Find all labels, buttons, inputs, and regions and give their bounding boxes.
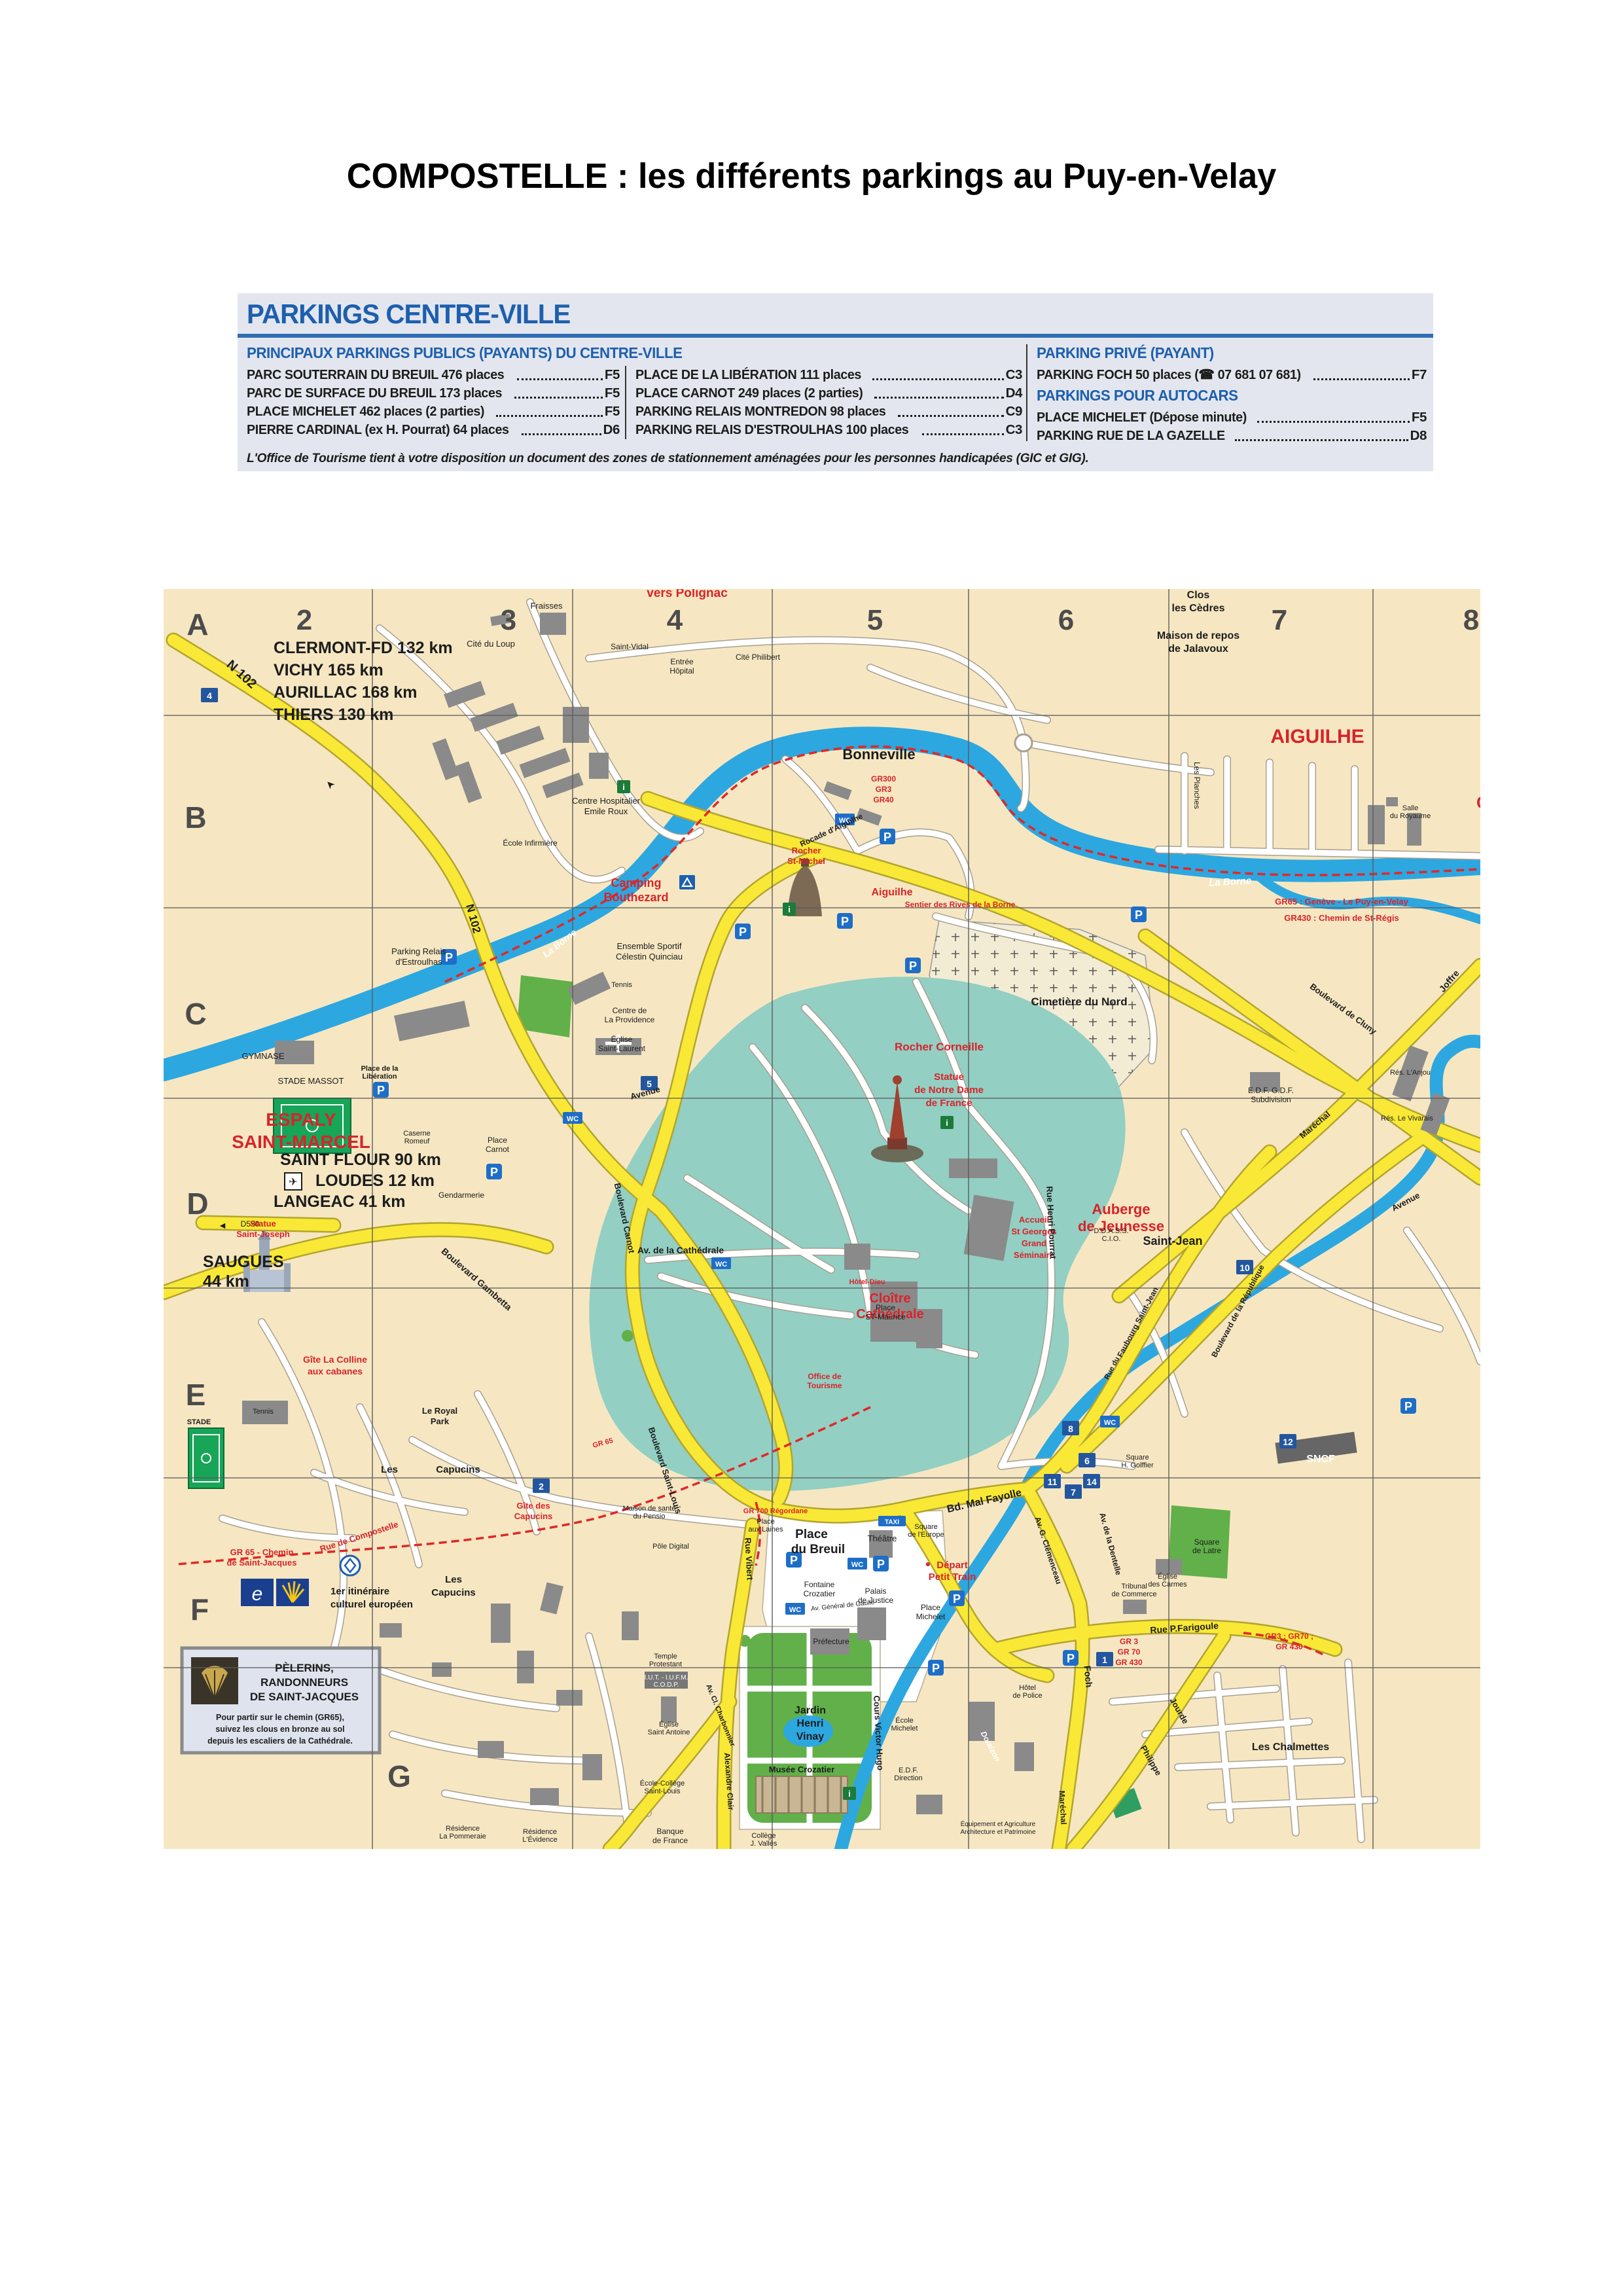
svg-text:e: e [252, 1583, 263, 1605]
map-label: ST-Maurice [865, 1312, 906, 1321]
svg-text:TAXI: TAXI [885, 1519, 899, 1526]
svg-text:P: P [1135, 908, 1143, 922]
map-label: Place [795, 1528, 828, 1541]
svg-text:2: 2 [539, 1481, 544, 1492]
map-label: Collège [751, 1832, 776, 1840]
private-parking-header: PARKING PRIVÉ (PAYANT) [1037, 344, 1415, 362]
map-label: St-Michel [787, 856, 825, 866]
parking-row: PARKING RELAIS MONTREDON 98 placesC9 [635, 403, 1022, 421]
map-label: 4 [667, 604, 683, 636]
map-label: Capucins [436, 1464, 480, 1475]
map-label: A [187, 607, 208, 641]
map-label: B [185, 800, 206, 834]
map-label: Michelet [916, 1612, 946, 1621]
map-label: La Providence [605, 1015, 655, 1024]
map-label: Maréchal [1058, 1790, 1069, 1825]
map-label: Banque [656, 1827, 684, 1836]
taxi-icon: TAXI [878, 1516, 906, 1526]
autocars-header: PARKINGS POUR AUTOCARS [1037, 387, 1415, 404]
map-label: Hôtel [1019, 1684, 1036, 1692]
map-label: de Latre [1192, 1546, 1221, 1555]
map-label: VICHY 165 km [274, 661, 383, 679]
svg-text:WC: WC [715, 1261, 727, 1268]
map-label: E.D.F. G.D.F. [1248, 1086, 1294, 1095]
map-label: Cité du Loup [467, 639, 515, 649]
map-label: GR300 [871, 774, 896, 783]
map-label: Accueil [1019, 1215, 1049, 1225]
map-label: de Notre Dame [914, 1085, 984, 1096]
map-label: Place [921, 1603, 940, 1612]
map-label: SAINT-MARCEL [232, 1132, 370, 1152]
svg-text:P: P [953, 1592, 961, 1605]
map-label: 2 [296, 604, 312, 636]
map-label: 7 [1272, 604, 1287, 636]
map-label: de Police [1012, 1692, 1042, 1700]
map-label: C [185, 997, 206, 1031]
map-label: DE SAINT-JACQUES [250, 1691, 359, 1703]
svg-text:i: i [946, 1118, 948, 1128]
map-label: Musée Crozatier [769, 1765, 834, 1774]
map-label: Bouthezard [604, 891, 669, 904]
map-label: GR 430 [1275, 1642, 1303, 1651]
map-label: Les Chalmettes [1252, 1742, 1329, 1753]
map-label: Jardin [794, 1705, 826, 1716]
svg-text:10: 10 [1240, 1263, 1250, 1273]
map-label: GR 65 - Chemin [230, 1547, 294, 1557]
map-label: La Pommeraie [439, 1833, 486, 1840]
map-label: J. Vallès [751, 1840, 777, 1848]
svg-text:i: i [848, 1789, 851, 1799]
panel-title: PARKINGS CENTRE-VILLE [247, 298, 570, 330]
route-number-badge: 4 [201, 688, 218, 702]
svg-text:1: 1 [1102, 1655, 1107, 1665]
svg-text:P: P [739, 925, 747, 939]
map-label: GYMNASE [241, 1051, 284, 1061]
map-label: Saint-Louis [644, 1787, 681, 1795]
svg-text:7: 7 [1071, 1487, 1076, 1498]
map-label: 44 km [203, 1272, 249, 1291]
svg-text:P: P [877, 1558, 885, 1571]
map-label: Les [445, 1574, 462, 1585]
route-number-badge: 1 [1096, 1652, 1113, 1666]
info-icon: i [783, 903, 796, 916]
map-label: C.I.O. [1102, 1235, 1121, 1243]
parking-icon: P [928, 1660, 944, 1676]
map-label: GR 430 [1115, 1658, 1143, 1667]
map-label: Rocher [792, 846, 821, 855]
map-label: ESPALY [266, 1109, 336, 1130]
map-label: Église [1158, 1572, 1177, 1581]
map-label: Gendarmerie [438, 1191, 484, 1200]
map-label: L'Évidence [522, 1835, 557, 1844]
map-label: G [387, 1759, 411, 1793]
map-label: AURILLAC 168 km [274, 683, 418, 702]
private-col: PARKING FOCH 50 places (☎ 07 681 07 681)… [1037, 366, 1427, 384]
map-label: Fontaine [804, 1580, 835, 1589]
svg-text:6: 6 [1084, 1456, 1090, 1466]
map-label: des Carmes [1148, 1581, 1187, 1588]
parking-row: PLACE MICHELET (Dépose minute)F5 [1037, 408, 1427, 427]
map-label: CLERMONT-FD 132 km [274, 639, 453, 657]
map-label: C.O.D.P. [654, 1681, 679, 1689]
wc-icon: WC [847, 1558, 867, 1570]
map-label: Les [381, 1464, 398, 1475]
map-label: Église [659, 1720, 679, 1729]
parking-icon: P [837, 913, 853, 929]
map-label: les Cèdres [1172, 603, 1225, 614]
map-label: RANDONNEURS [260, 1676, 348, 1689]
map-label: GR 700 Régordane [743, 1507, 808, 1515]
map-label: GR430 : Chemin de St-Régis [1284, 913, 1399, 923]
svg-text:P: P [1067, 1652, 1075, 1665]
map-label: STADE MASSOT [278, 1076, 344, 1086]
map-label: Temple [654, 1653, 677, 1660]
parking-row: PARKING RELAIS D'ESTROULHAS 100 placesC3 [635, 421, 1022, 439]
parking-icon: P [949, 1590, 965, 1606]
camping-icon [679, 875, 695, 889]
map-label: Square [1126, 1454, 1149, 1462]
map-label: SAUGUES [203, 1253, 284, 1271]
map-label: Les Planches [1192, 762, 1202, 809]
map-label: Statue [934, 1071, 964, 1083]
map-label: D.D.A.S.S. [1094, 1227, 1128, 1235]
map-label: D [187, 1187, 208, 1221]
map-label: F [190, 1592, 209, 1626]
map-label: Petit Train [929, 1571, 976, 1583]
svg-text:P: P [490, 1166, 498, 1179]
map-label: Square [914, 1523, 937, 1531]
map-label: Saint-Jean [1143, 1234, 1202, 1247]
map-label: Résidence [523, 1828, 557, 1836]
map-label: Hôtel-Dieu [849, 1278, 885, 1286]
parking-icon: P [1400, 1398, 1416, 1414]
map-label: LANGEAC 41 km [274, 1193, 405, 1211]
map-svg: e PPPPPPPPPPPPPPWCWCWCWCWCWCTAXI45286117… [164, 589, 1480, 1849]
map-label: Park [431, 1416, 450, 1426]
info-icon: i [617, 780, 630, 793]
map-label: École [895, 1716, 914, 1725]
map-label: ◄ [218, 1220, 227, 1230]
map-label: Théâtre [868, 1534, 897, 1543]
map-label: du Royaume [1390, 812, 1431, 820]
airport-icon: ✈ [285, 1173, 302, 1190]
map-label: SNCF [1306, 1454, 1335, 1465]
parking-row: PARC SOUTERRAIN DU BREUIL 476 placesF5 [247, 366, 620, 384]
map-label: Carnot [486, 1145, 510, 1154]
map-label: Cimetière du Nord [1031, 996, 1127, 1008]
map-label: Hôpital [669, 666, 694, 675]
map-label: Grand [1022, 1238, 1046, 1248]
map-label: de Commerce [1111, 1590, 1156, 1598]
map-label: AIGUILHE [1270, 726, 1364, 747]
map-label: Centre de [613, 1006, 647, 1015]
info-icon: i [940, 1116, 954, 1129]
map-label: Bonneville [842, 746, 915, 762]
svg-text:i: i [788, 905, 791, 914]
map-label: culturel européen [330, 1599, 413, 1610]
map-label: d'Estroulhas [395, 957, 442, 967]
parking-row: PLACE DE LA LIBÉRATION 111 placesC3 [635, 366, 1022, 384]
autocars-col: PLACE MICHELET (Dépose minute)F5PARKING … [1037, 408, 1427, 445]
public-col-1: PARC SOUTERRAIN DU BREUIL 476 placesF5PA… [247, 366, 626, 439]
map-label: Résidence [446, 1825, 480, 1833]
map-label: Architecture et Patrimoine [960, 1829, 1035, 1836]
map-label: Célestin Quinciau [616, 952, 683, 961]
map-label: Saint Antoine [648, 1729, 690, 1736]
map-label: aux cabanes [308, 1366, 363, 1376]
map-label: Tourisme [807, 1381, 842, 1390]
map-label: Tennis [611, 981, 632, 989]
wc-icon: WC [711, 1257, 731, 1269]
map-label: Tribunal [1121, 1583, 1147, 1590]
map-label: Maison de santé [623, 1505, 676, 1513]
svg-text:WC: WC [567, 1115, 579, 1123]
map-label: Office de [808, 1372, 842, 1381]
map-label: de France [926, 1098, 972, 1109]
parking-icon: P [1063, 1650, 1079, 1666]
route-number-badge: 6 [1079, 1453, 1096, 1467]
parking-icon: P [1131, 906, 1147, 922]
public-parkings-header: PRINCIPAUX PARKINGS PUBLICS (PAYANTS) DU… [247, 344, 999, 362]
map-label: École Infirmière [503, 838, 558, 848]
map-label: Le Royal [422, 1406, 457, 1416]
map-label: Sentier des Rives de la Borne [905, 900, 1016, 909]
map-label: Vinay [796, 1731, 825, 1742]
map-label: Salle [1402, 804, 1418, 812]
map-label: CHADRAC [1476, 793, 1480, 812]
map-label: Rés. L'Anjou [1390, 1069, 1431, 1077]
map-label: SAINT FLOUR 90 km [280, 1151, 441, 1169]
map-label: Entrée [670, 657, 694, 666]
map-label: Henri [797, 1718, 824, 1729]
map-label: Camping [611, 876, 661, 889]
map-label: suivez les clous en bronze au sol [215, 1725, 344, 1734]
map-label: La Borne [1209, 875, 1252, 888]
parking-row: PLACE MICHELET 462 places (2 parties)F5 [247, 403, 620, 421]
map-label: Protestant [649, 1660, 682, 1668]
map-label: École-Collège [640, 1779, 685, 1787]
map-label: Rocher Corneille [895, 1041, 984, 1053]
map-label: Place [757, 1518, 775, 1526]
svg-text:4: 4 [207, 691, 212, 701]
svg-text:P: P [1404, 1400, 1412, 1413]
map-label: Michelet [891, 1725, 918, 1732]
public-parkings-section: PRINCIPAUX PARKINGS PUBLICS (PAYANTS) DU… [247, 344, 1022, 445]
map-label: PÈLERINS, [275, 1662, 334, 1674]
panel-divider [1026, 344, 1027, 441]
map-label: Équipement et Agriculture [961, 1820, 1036, 1828]
map-label: Caserne [403, 1130, 431, 1138]
map-label: Ensemble Sportif [617, 941, 682, 951]
parking-row: PLACE CARNOT 249 places (2 parties)D4 [635, 384, 1022, 403]
map-label: Place [876, 1303, 895, 1312]
map-label: Gîte La Colline [303, 1354, 367, 1365]
parking-row: PIERRE CARDINAL (ex H. Pourrat) 64 place… [247, 421, 620, 439]
map-label: Capucins [514, 1511, 553, 1521]
svg-text:11: 11 [1048, 1477, 1058, 1487]
svg-text:WC: WC [789, 1606, 801, 1614]
musee-crozatier-art [756, 1776, 847, 1813]
map-label: Av. de la Cathédrale [637, 1245, 724, 1255]
map-label: Crozatier [804, 1589, 836, 1598]
map-label: E.D.F. [899, 1767, 918, 1774]
route-number-badge: 8 [1062, 1421, 1079, 1435]
map-label: 1er itinéraire [330, 1586, 389, 1597]
map-label: Pour partir sur le chemin (GR65), [216, 1713, 344, 1722]
parking-icon: P [880, 829, 895, 844]
map-label: GR 70 [1118, 1647, 1141, 1657]
wc-icon: WC [563, 1112, 582, 1124]
map-label: I.U.T. - I.U.F.M. [645, 1674, 688, 1681]
map-label: E [186, 1378, 206, 1412]
map-label: Saint-Vidal [611, 642, 649, 651]
map-label: THIERS 130 km [274, 706, 393, 724]
parking-row: PARKING FOCH 50 places (☎ 07 681 07 681)… [1037, 366, 1427, 384]
map-label: Subdivision [1251, 1095, 1291, 1104]
map-label: Statue [250, 1219, 276, 1229]
route-number-badge: 7 [1065, 1484, 1082, 1499]
info-icon: i [843, 1787, 856, 1800]
parking-row: PARKING RUE DE LA GAZELLED8 [1037, 427, 1427, 445]
map-label: Auberge [1092, 1201, 1150, 1217]
map-label: LOUDES 12 km [315, 1172, 435, 1190]
map-label: 3 [501, 604, 516, 636]
map-label: GR 3 [1120, 1637, 1138, 1646]
svg-text:P: P [932, 1662, 940, 1675]
map-label: Capucins [431, 1587, 476, 1598]
route-number-badge: 11 [1044, 1474, 1061, 1488]
map-label: de Saint-Jacques [227, 1558, 297, 1568]
map-label: Saint-Joseph [236, 1229, 290, 1239]
map-label: 6 [1058, 604, 1074, 636]
map-label: Départ [936, 1560, 968, 1571]
map-label: Maison de repos [1157, 630, 1240, 641]
map-label: GR3 [876, 785, 892, 794]
wc-icon: WC [785, 1603, 805, 1615]
public-col-2: PLACE DE LA LIBÉRATION 111 placesC3PLACE… [626, 366, 1022, 439]
map-label: Aiguilhe [871, 887, 912, 898]
parking-icon: P [486, 1164, 502, 1179]
map-label: depuis les escaliers de la Cathédrale. [207, 1736, 353, 1746]
map-label: STADE [187, 1418, 211, 1426]
page-title: COMPOSTELLE : les différents parkings au… [24, 156, 1599, 196]
map-label: H. Golffier [1121, 1462, 1154, 1469]
map-label: Pôle Digital [652, 1543, 689, 1551]
parking-icon: P [873, 1556, 889, 1571]
parking-icon: P [905, 958, 921, 973]
svg-text:✈: ✈ [289, 1177, 297, 1188]
map-label: Préfecture [813, 1637, 849, 1646]
map-label: 5 [867, 604, 883, 636]
map-label: Libération [362, 1073, 397, 1081]
route-number-badge: 14 [1083, 1474, 1100, 1488]
svg-text:12: 12 [1283, 1437, 1293, 1447]
private-parkings-section: PARKING PRIVÉ (PAYANT) PARKING FOCH 50 p… [1022, 344, 1427, 445]
svg-text:WC: WC [1104, 1419, 1116, 1427]
map-label: Église [611, 1034, 633, 1044]
parking-row: PARC DE SURFACE DU BREUIL 173 placesF5 [247, 384, 620, 403]
map-label: Romeuf [404, 1138, 430, 1145]
map-label: Rés. Le Vivarais [1381, 1115, 1433, 1122]
map-label: Square [1194, 1537, 1220, 1547]
svg-text:8: 8 [1068, 1424, 1073, 1434]
map-label: Centre Hospitalier [572, 796, 641, 806]
svg-text:P: P [883, 831, 891, 844]
map-label: Saint-Laurent [598, 1044, 646, 1053]
route-number-badge: 12 [1279, 1434, 1296, 1448]
map-label: vers Polignac [647, 589, 728, 600]
wc-icon: WC [1100, 1416, 1120, 1427]
map-label: Emile Roux [584, 806, 628, 816]
route-number-badge: 10 [1236, 1260, 1253, 1274]
svg-text:P: P [377, 1084, 385, 1097]
map-label: aux Laines [748, 1526, 783, 1534]
svg-text:P: P [909, 960, 917, 973]
document-page: { "page": { "title": "COMPOSTELLE : les … [0, 0, 1623, 2296]
map-label: Clos [1187, 590, 1210, 601]
parking-icon: P [735, 924, 751, 939]
svg-text:i: i [622, 782, 625, 792]
map-label: Place [488, 1136, 507, 1145]
map-label: GR3 ; GR70 ; [1265, 1632, 1313, 1641]
map-label: du Breuil [791, 1543, 845, 1556]
parking-icon: P [373, 1082, 389, 1098]
map-label: GR40 [873, 795, 894, 804]
map-label: Direction [894, 1774, 922, 1782]
map-label: Parking Relais [391, 946, 446, 956]
svg-text:P: P [841, 915, 849, 928]
svg-text:WC: WC [851, 1561, 863, 1569]
map-label: 8 [1463, 604, 1479, 636]
map-label: Cité Philibert [736, 653, 781, 662]
svg-text:14: 14 [1086, 1477, 1097, 1487]
route-number-badge: 2 [533, 1479, 550, 1493]
parking-info-panel: PARKINGS CENTRE-VILLE PRINCIPAUX PARKING… [238, 293, 1433, 471]
map-label: de France [652, 1836, 688, 1845]
map-label: de Jalavoux [1168, 643, 1228, 655]
map-label: Tennis [253, 1408, 274, 1416]
city-map: e PPPPPPPPPPPPPPWCWCWCWCWCWCTAXI45286117… [164, 589, 1480, 1849]
map-label: du Pensio [633, 1513, 666, 1520]
map-label: Foch [1082, 1665, 1095, 1688]
panel-rule [238, 334, 1433, 338]
map-label: GR65 : Genève - Le Puy-en-Velay [1275, 897, 1409, 906]
map-label: Place de la [361, 1065, 399, 1073]
map-label: ● [925, 1558, 931, 1569]
map-label: Palais [865, 1587, 887, 1596]
panel-footer: L'Office de Tourisme tient à votre dispo… [247, 451, 1088, 466]
map-label: Gîte des [516, 1501, 550, 1511]
map-label: Fraisses [530, 601, 563, 611]
map-label: de l'Europe [908, 1531, 944, 1539]
